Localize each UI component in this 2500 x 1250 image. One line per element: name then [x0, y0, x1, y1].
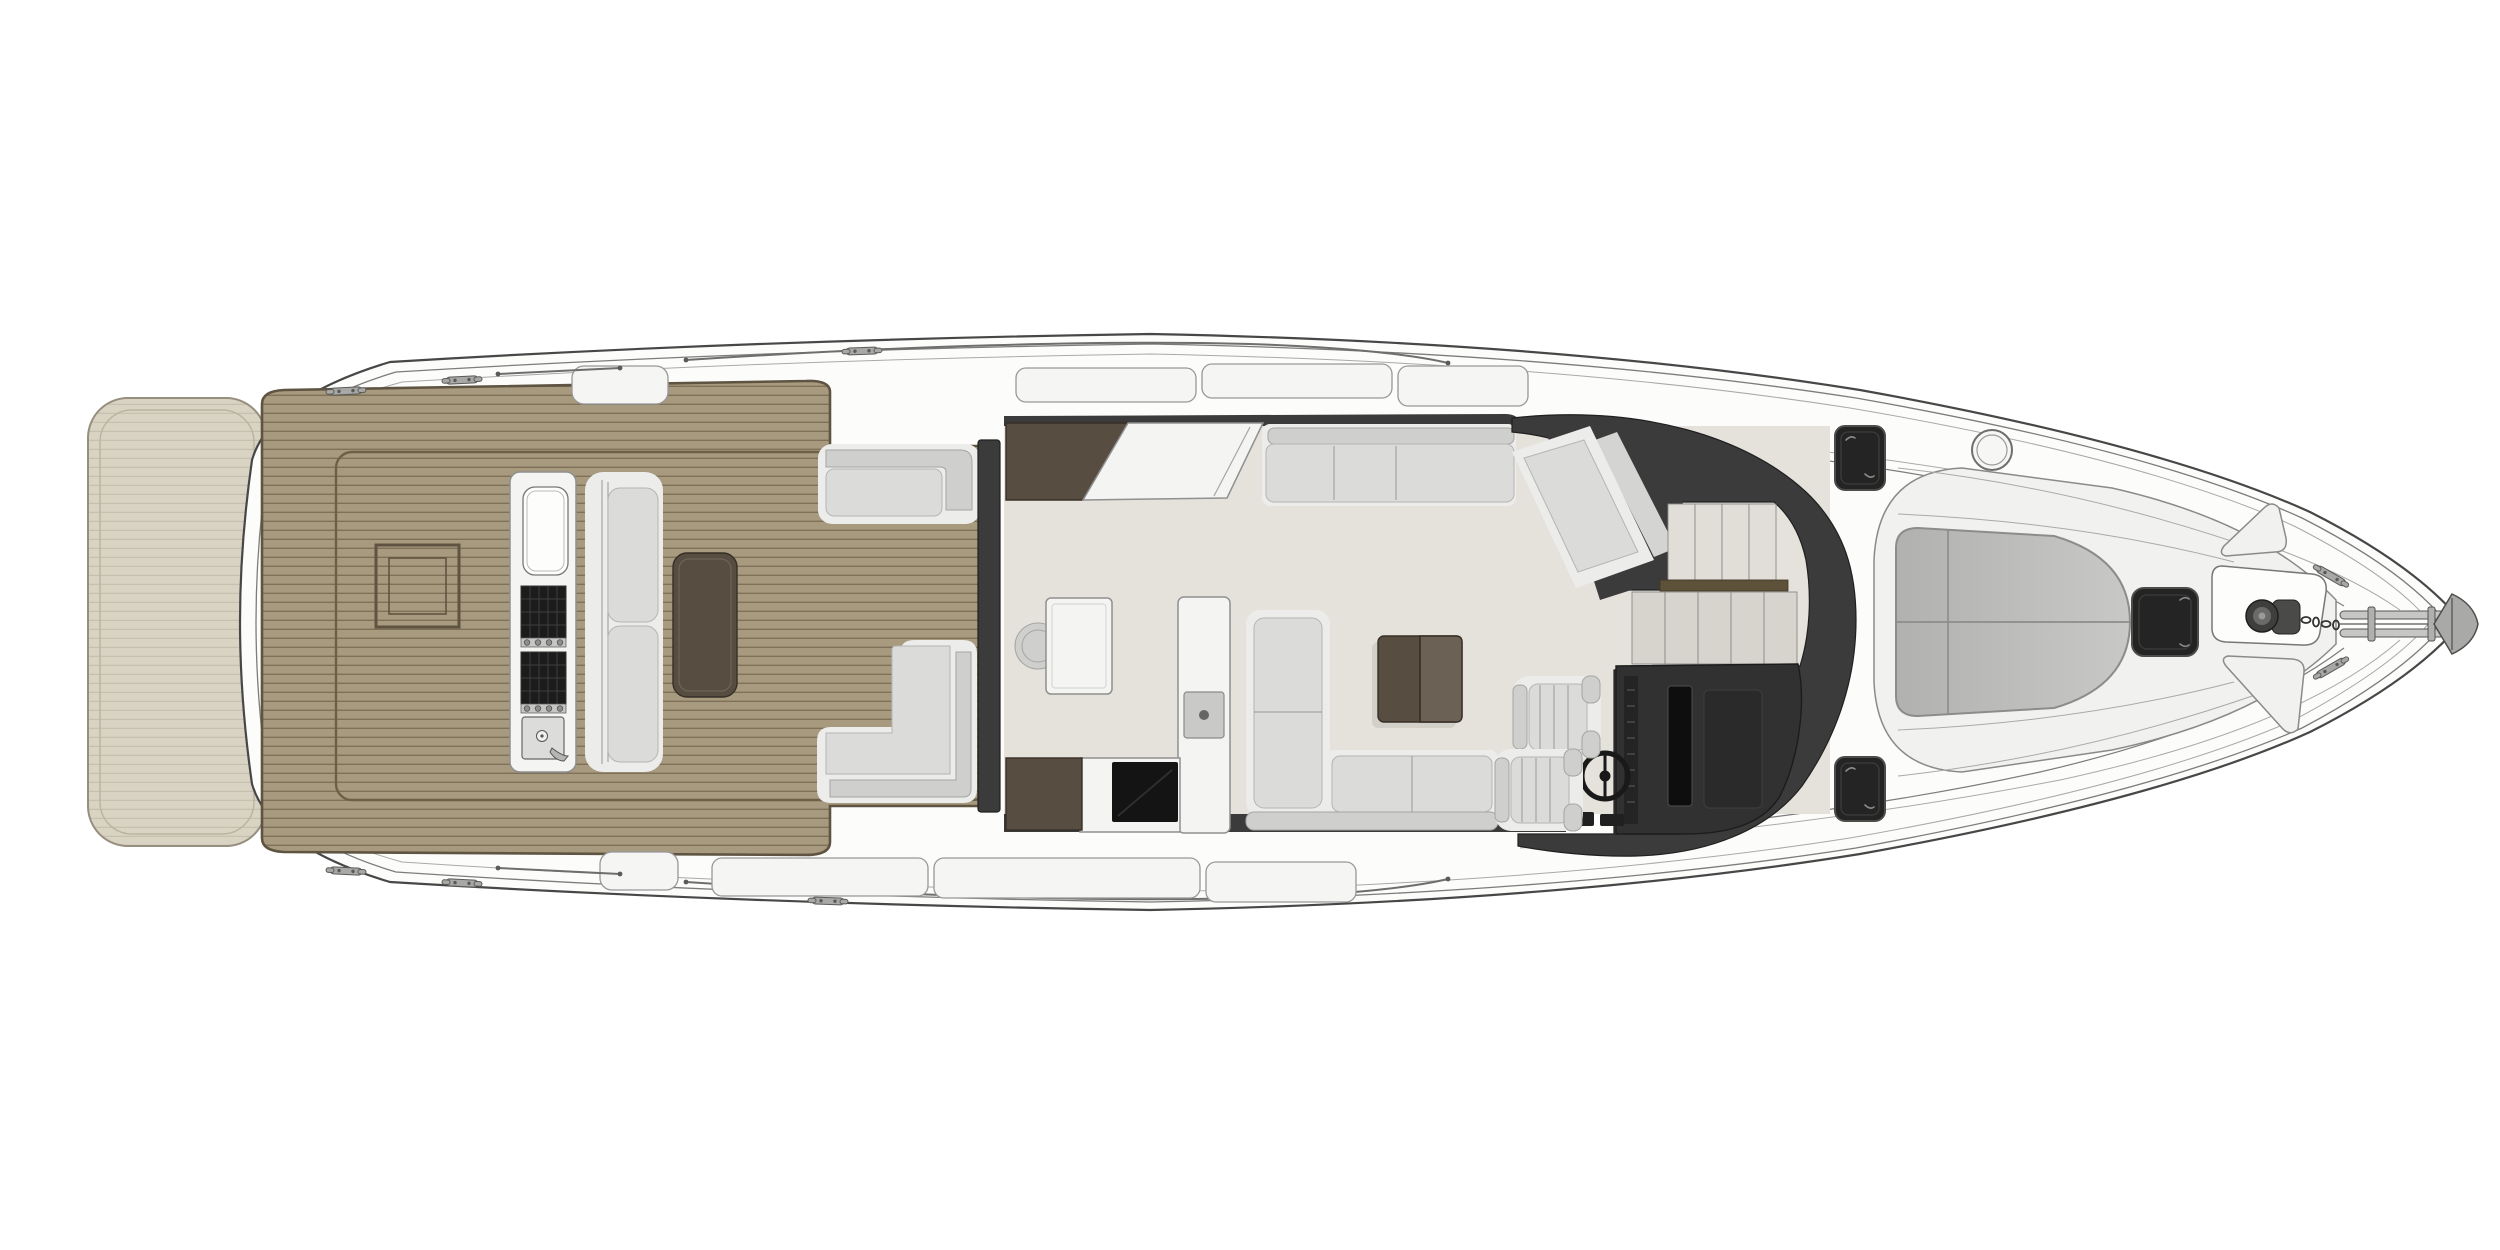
- round-deck-hatch: [1972, 430, 2012, 470]
- grill-knob: [535, 640, 541, 646]
- grill-knob: [546, 640, 552, 646]
- stair-tread: [1698, 592, 1731, 664]
- cockpit-table-top: [673, 553, 737, 697]
- cooktop-burner: [1199, 710, 1209, 720]
- stair-tread: [1695, 504, 1722, 580]
- coffee-table: [1372, 636, 1462, 728]
- sofa-cushions: [1266, 444, 1514, 502]
- switch-panel: [1600, 814, 1624, 826]
- walkway-pad: [1202, 364, 1392, 398]
- helm-seat: [1495, 749, 1583, 831]
- galley-port-cabinet: [1006, 758, 1082, 830]
- sofa-backrest: [1268, 428, 1514, 444]
- grill-knob: [546, 706, 552, 712]
- grill-knob: [524, 640, 530, 646]
- dinette-table: [1046, 598, 1112, 694]
- cockpit-table: [673, 553, 737, 697]
- grill-knob: [557, 706, 563, 712]
- windlass-cap: [2259, 613, 2266, 620]
- bow-sunpad: [1896, 528, 2130, 716]
- deck-hatch: [1835, 426, 1885, 490]
- walkway-pad: [934, 858, 1200, 898]
- walkway-pad: [712, 858, 928, 896]
- stair-tread: [1665, 592, 1698, 664]
- rail-end: [618, 872, 623, 877]
- rail-end: [618, 366, 623, 371]
- cockpit-wet-bar: [510, 472, 576, 772]
- cockpit-bench: [585, 472, 663, 772]
- coffee-table-top-right: [1420, 636, 1462, 722]
- stair-tread: [1722, 504, 1749, 580]
- engine-room-hatch: [376, 545, 459, 627]
- aft-seat-cushion: [826, 469, 942, 516]
- walkway-pad: [1206, 862, 1356, 902]
- salon-bulkhead-door: [978, 440, 1000, 812]
- rail-end: [496, 372, 501, 377]
- deck-hatch: [1835, 757, 1885, 821]
- rail-end: [684, 880, 689, 885]
- aft-seat-starboard: [818, 444, 980, 524]
- walkway-pad: [1016, 368, 1196, 402]
- stair-tread: [1749, 504, 1776, 580]
- console-display: [1668, 686, 1692, 806]
- deck-plan-drawing: [0, 0, 2500, 1250]
- grill-knob: [535, 706, 541, 712]
- stair-tread: [1731, 592, 1764, 664]
- l-sofa-backrest: [1246, 812, 1498, 830]
- roller-crossbar: [2368, 607, 2375, 641]
- rail-end: [1446, 877, 1451, 882]
- cleat: [808, 897, 848, 905]
- grill-knob: [557, 640, 563, 646]
- transom-gate-port: [600, 852, 678, 890]
- salon-sofa: [1262, 424, 1516, 506]
- stair-tread: [1764, 592, 1797, 664]
- stair-handrail: [1660, 580, 1788, 591]
- rail-end: [496, 866, 501, 871]
- yacht-deck-plan-page: [0, 0, 2500, 1250]
- rail-end: [684, 358, 689, 363]
- bench-cushion: [608, 488, 658, 622]
- stair-tread: [1632, 592, 1665, 664]
- wet-bar-lid: [523, 487, 568, 575]
- grill-knob: [524, 706, 530, 712]
- bow-hatch: [2132, 588, 2198, 656]
- l-sofa-chaise-cushion: [1254, 618, 1322, 808]
- bench-cushion: [608, 626, 658, 762]
- console-dash-panel: [1704, 690, 1762, 808]
- rail-end: [1446, 361, 1451, 366]
- cleat: [842, 347, 882, 355]
- walkway-pad: [1398, 366, 1528, 406]
- helm-seat: [1513, 676, 1601, 758]
- transom-gate-starboard: [572, 366, 668, 404]
- stair-tread: [1668, 504, 1695, 580]
- sink-drain-dot: [540, 734, 543, 737]
